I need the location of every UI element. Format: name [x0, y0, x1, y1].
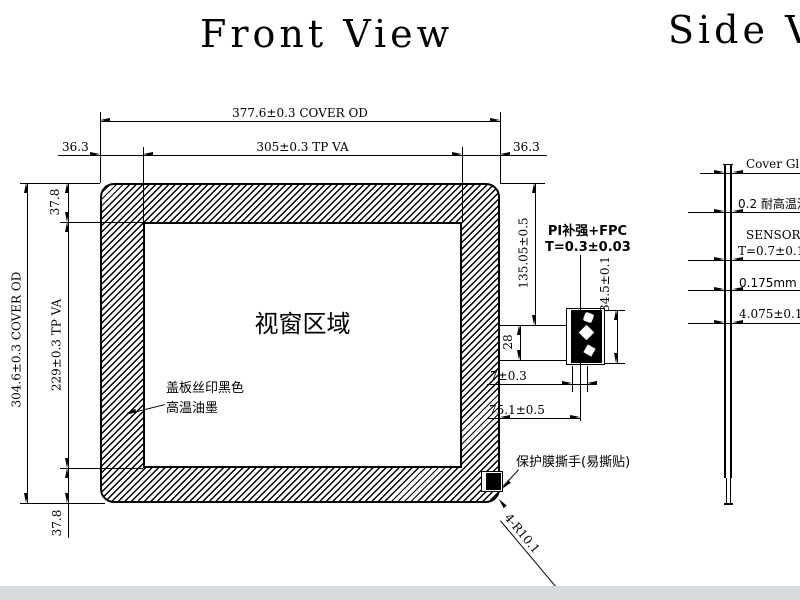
- dim-fpc-top-offset: 135.05±0.5: [517, 216, 531, 291]
- dim-bottom-margin: 37.8: [50, 508, 64, 538]
- extension-line: [587, 366, 588, 392]
- arrowhead-icon: [500, 415, 510, 419]
- dim-fpc-center-offset: 75.1±0.5: [489, 403, 545, 417]
- dim-line-cover-height: [27, 183, 28, 503]
- corner-radius-note: 4-R10.1: [500, 511, 569, 589]
- dim-cover-height: 304.6±0.3 COVER OD: [10, 283, 24, 408]
- arrowhead-icon: [714, 209, 724, 213]
- dim-side-margin-right: 36.3: [513, 140, 540, 154]
- arrowhead-icon: [65, 212, 69, 222]
- footer-bar: [0, 586, 800, 600]
- dim-cover-width: 377.6±0.3 COVER OD: [100, 106, 500, 120]
- dim-tp-width: 305±0.3 TP VA: [143, 140, 462, 154]
- dim-top-margin: 37.8: [48, 187, 62, 217]
- arrowhead-icon: [517, 350, 521, 360]
- arrowhead-icon: [532, 183, 536, 193]
- side-view-stack-lower: [726, 478, 731, 504]
- arrowhead-icon: [532, 315, 536, 325]
- extension-line: [572, 366, 573, 392]
- arrowhead-icon: [587, 381, 597, 385]
- ink-note-line2: 高温油墨: [166, 399, 218, 419]
- dim-line-fpc-small: [487, 384, 597, 385]
- extension-line: [60, 222, 143, 223]
- extension-line: [500, 183, 545, 184]
- layer-label-sensor: SENSOR GLASS: [746, 228, 800, 242]
- arrowhead-icon: [562, 381, 572, 385]
- film-tab: [486, 473, 501, 490]
- arrowhead-icon: [714, 170, 724, 174]
- dim-line-tp-width: [58, 155, 547, 156]
- arrowhead-icon: [714, 287, 724, 291]
- side-view-title: Side View: [668, 8, 800, 52]
- arrowhead-icon: [614, 353, 618, 363]
- extension-line: [143, 147, 144, 222]
- fpc-centerline: [580, 363, 581, 421]
- arrowhead-icon: [733, 170, 743, 174]
- arrowhead-icon: [714, 257, 724, 261]
- corner-note-arrowhead-icon: [497, 498, 506, 508]
- engineering-drawing-canvas: Front View Side View 视窗区域 盖板丝印黑色 高温油墨 37…: [0, 0, 800, 600]
- dim-fpc-exit-width: 28: [501, 332, 515, 352]
- layer-label-total-thickness: 4.075±0.1: [739, 307, 800, 321]
- extension-line: [605, 363, 625, 364]
- fpc-ribbon-bottom-line: [500, 360, 566, 361]
- arrowhead-icon: [65, 222, 69, 232]
- layer-label-sensor-thickness: T=0.7±0.1: [738, 244, 800, 258]
- layer-label-cover-glass: Cover Glass: [746, 157, 800, 171]
- extension-line: [60, 468, 143, 469]
- viewing-window: [143, 222, 462, 468]
- arrowhead-icon: [65, 493, 69, 503]
- dim-fpc-small-offset: 7±0.3: [490, 369, 527, 383]
- arrowhead-icon: [500, 152, 510, 156]
- arrowhead-icon: [24, 493, 28, 503]
- arrowhead-icon: [65, 458, 69, 468]
- fpc-ribbon-top-line: [500, 325, 566, 326]
- fpc-note-line2: T=0.3±0.03: [545, 238, 630, 258]
- layer-label-adhesive: 0.175mm 双面胶: [739, 273, 800, 293]
- side-view-top-tick: [723, 164, 733, 165]
- window-area-label: 视窗区域: [143, 314, 462, 334]
- arrowhead-icon: [65, 468, 69, 478]
- side-view-bottom-tick: [724, 503, 733, 505]
- dim-fpc-connector-height: 34.5±0.1: [598, 254, 612, 314]
- dim-line-fpc-offset: [535, 183, 536, 325]
- dim-tp-height: 229±0.3 TP VA: [50, 298, 64, 393]
- extension-line: [462, 147, 463, 222]
- front-view-title: Front View: [200, 12, 453, 56]
- arrowhead-icon: [90, 152, 100, 156]
- film-note: 保护膜撕手(易撕贴): [516, 453, 630, 473]
- arrowhead-icon: [24, 183, 28, 193]
- extension-line: [20, 183, 100, 184]
- ink-note-line1: 盖板丝印黑色: [166, 379, 244, 399]
- layer-leader-line: [688, 323, 800, 324]
- extension-line: [100, 112, 101, 183]
- extension-line: [20, 503, 105, 504]
- arrowhead-icon: [65, 183, 69, 193]
- arrowhead-icon: [517, 325, 521, 335]
- arrowhead-icon: [614, 310, 618, 320]
- arrowhead-icon: [570, 415, 580, 419]
- extension-line: [500, 112, 501, 183]
- dim-line-cover-width: [100, 121, 500, 122]
- dim-side-margin-left: 36.3: [62, 140, 89, 154]
- fpc-centerline: [580, 255, 581, 310]
- layer-label-ink: 0.2 耐高温油墨: [738, 194, 800, 214]
- dim-line-tp-height: [68, 183, 69, 538]
- layer-leader-line: [688, 260, 800, 261]
- arrowhead-icon: [714, 320, 724, 324]
